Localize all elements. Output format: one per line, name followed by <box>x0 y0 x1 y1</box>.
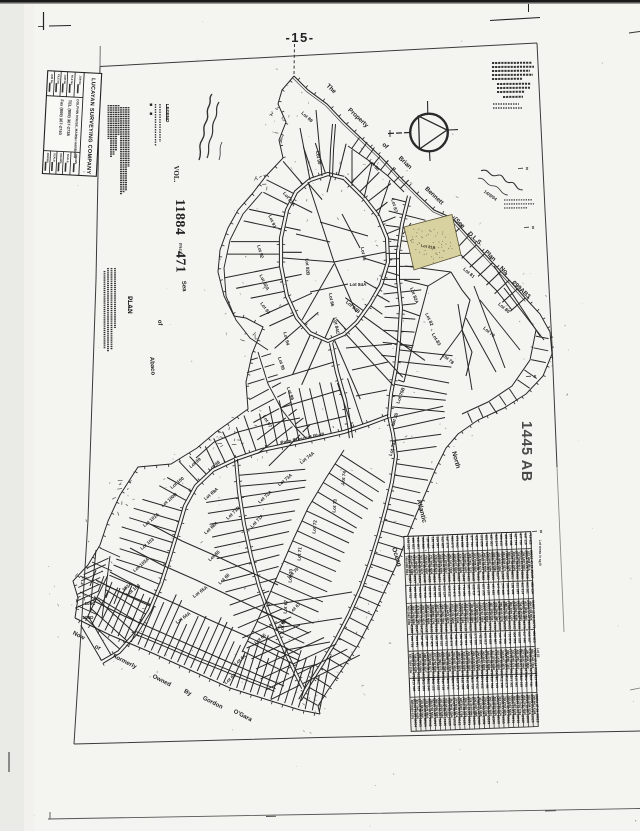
svg-text:758 4419 8665: 758 4419 8665 <box>519 601 524 621</box>
svg-text:558 8675 3396: 558 8675 3396 <box>439 554 444 574</box>
svg-text:905 865: 905 865 <box>421 537 425 549</box>
svg-text:752 5459 9102: 752 5459 9102 <box>517 551 522 571</box>
svg-text:687 3395 0047: 687 3395 0047 <box>489 603 494 623</box>
svg-text:231 2038 7509: 231 2038 7509 <box>442 652 447 672</box>
svg-text:152 064: 152 064 <box>490 677 494 689</box>
svg-text:050 6413 8367: 050 6413 8367 <box>444 698 449 718</box>
svg-text:186 363: 186 363 <box>460 678 464 690</box>
svg-text:822 587: 822 587 <box>493 632 497 644</box>
svg-text:700 516: 700 516 <box>504 676 508 688</box>
svg-text:685 054: 685 054 <box>530 582 534 594</box>
svg-text:986 8000 2578: 986 8000 2578 <box>499 602 504 622</box>
svg-text:244 4721 2646: 244 4721 2646 <box>477 651 482 671</box>
svg-text:965 075: 965 075 <box>450 536 454 548</box>
svg-text:549 904: 549 904 <box>454 634 458 646</box>
svg-text:255 466: 255 466 <box>501 583 505 595</box>
svg-text:749 6499 0913: 749 6499 0913 <box>404 556 409 576</box>
svg-text:680 4420 6788: 680 4420 6788 <box>459 698 464 718</box>
svg-text:343 1611 7240: 343 1611 7240 <box>448 554 453 574</box>
svg-text:389 8364 0376: 389 8364 0376 <box>410 700 415 720</box>
svg-text:931 491: 931 491 <box>416 537 420 549</box>
svg-text:251 925: 251 925 <box>515 583 519 595</box>
svg-text:139 718: 139 718 <box>498 632 502 644</box>
svg-text:DRAWN: DRAWN <box>46 153 51 163</box>
svg-text:435 240: 435 240 <box>504 534 508 546</box>
svg-text:264 4220 9690: 264 4220 9690 <box>493 697 498 717</box>
svg-text:994 1013 7215: 994 1013 7215 <box>464 698 469 718</box>
svg-text:436 349: 436 349 <box>474 535 478 547</box>
svg-text:745 458: 745 458 <box>465 678 469 690</box>
svg-text:313 678: 313 678 <box>465 535 469 547</box>
svg-text:229 9911 9148: 229 9911 9148 <box>532 695 537 715</box>
svg-text:454 0193 8026: 454 0193 8026 <box>528 601 533 621</box>
svg-text:513 7098 5931: 513 7098 5931 <box>473 553 478 573</box>
svg-text:186 449: 186 449 <box>511 583 515 595</box>
svg-text:065 9657 5692: 065 9657 5692 <box>481 651 486 671</box>
svg-text:693 7854 7772: 693 7854 7772 <box>438 653 443 673</box>
svg-text:273 545: 273 545 <box>455 536 459 548</box>
svg-text:121 965: 121 965 <box>534 675 538 687</box>
svg-text:x: x <box>534 374 537 380</box>
svg-text:x: x <box>526 166 529 172</box>
svg-text:477 752: 477 752 <box>518 533 522 545</box>
svg-text:FILE No: FILE No <box>56 74 61 84</box>
svg-text:124 190: 124 190 <box>406 538 410 550</box>
svg-text:827 1091 0430: 827 1091 0430 <box>415 700 420 720</box>
svg-text:431 351: 431 351 <box>489 535 493 547</box>
svg-text:506 1497 3103: 506 1497 3103 <box>512 696 517 716</box>
svg-text:377 889: 377 889 <box>496 583 500 595</box>
svg-text:188 8880 6706: 188 8880 6706 <box>431 605 436 625</box>
svg-text:059 2962 2292: 059 2962 2292 <box>406 606 411 626</box>
svg-text:11884: 11884 <box>172 199 187 235</box>
svg-text:191 8255 3714: 191 8255 3714 <box>511 650 516 670</box>
svg-text:697 1179 8089: 697 1179 8089 <box>426 605 431 625</box>
svg-text:FILE No: FILE No <box>70 75 75 85</box>
svg-text:DRAWN: DRAWN <box>59 153 64 163</box>
svg-text:156 1497 8403: 156 1497 8403 <box>522 551 527 571</box>
svg-text:661 5654 5271: 661 5654 5271 <box>502 552 507 572</box>
svg-text:112 5457 3875: 112 5457 3875 <box>501 650 506 670</box>
svg-text:215 7043 3154: 215 7043 3154 <box>498 696 503 716</box>
svg-text:279 568: 279 568 <box>473 633 477 645</box>
svg-text:713 395: 713 395 <box>412 680 416 692</box>
svg-text:684 577: 684 577 <box>451 678 455 690</box>
svg-text:171 8702 6217: 171 8702 6217 <box>444 554 449 574</box>
svg-text:424 154: 424 154 <box>485 677 489 689</box>
svg-text:LEGEND: LEGEND <box>165 104 170 122</box>
svg-text:617 9796 8868: 617 9796 8868 <box>491 651 496 671</box>
svg-text:SCALE: SCALE <box>52 153 56 162</box>
svg-text:261 9906 2344: 261 9906 2344 <box>449 698 454 718</box>
svg-text:688 2634 3517: 688 2634 3517 <box>423 653 428 673</box>
svg-text:489 0250 3926: 489 0250 3926 <box>457 652 462 672</box>
svg-text:471: 471 <box>173 251 188 273</box>
svg-text:877 1753 5560: 877 1753 5560 <box>433 653 438 673</box>
svg-text:715 4516 8087: 715 4516 8087 <box>424 555 429 575</box>
svg-text:616 3294 5116: 616 3294 5116 <box>527 695 532 715</box>
svg-text:785 0792 5241: 785 0792 5241 <box>430 699 435 719</box>
svg-text:769 453: 769 453 <box>440 536 444 548</box>
svg-text:124 9985 6984: 124 9985 6984 <box>497 552 502 572</box>
svg-text:824 008: 824 008 <box>509 534 513 546</box>
svg-text:027 8742 9671: 027 8742 9671 <box>419 555 424 575</box>
svg-text:004 991: 004 991 <box>415 635 419 647</box>
svg-text:268 414: 268 414 <box>464 634 468 646</box>
svg-text:590 515: 590 515 <box>506 583 510 595</box>
svg-text:855 744: 855 744 <box>484 535 488 547</box>
svg-text:JOB No: JOB No <box>50 74 55 84</box>
svg-text:VOL.: VOL. <box>172 166 180 183</box>
svg-text:474 3671 3695: 474 3671 3695 <box>458 554 463 574</box>
svg-text:185 067: 185 067 <box>426 537 430 549</box>
svg-text:287 431: 287 431 <box>425 635 429 647</box>
svg-text:779 979: 779 979 <box>452 585 456 597</box>
svg-text:427 109: 427 109 <box>514 534 518 546</box>
svg-text:SCALE: SCALE <box>66 154 70 163</box>
svg-text:581 477: 581 477 <box>467 584 471 596</box>
svg-text:496 631: 496 631 <box>411 538 415 550</box>
svg-text:102 0275 8842: 102 0275 8842 <box>425 699 430 719</box>
svg-text:948 126: 948 126 <box>431 679 435 691</box>
svg-text:378 4270 1039: 378 4270 1039 <box>483 697 488 717</box>
svg-text:790 874: 790 874 <box>508 632 512 644</box>
svg-text:656 0494 5198: 656 0494 5198 <box>507 552 512 572</box>
svg-text:675 8692 6179: 675 8692 6179 <box>478 553 483 573</box>
svg-text:141 8328 5691: 141 8328 5691 <box>420 699 425 719</box>
svg-text:359 7746 8862: 359 7746 8862 <box>411 606 416 626</box>
svg-text:530 174: 530 174 <box>459 634 463 646</box>
svg-text:549 329: 549 329 <box>434 635 438 647</box>
svg-text:710 2767 7359: 710 2767 7359 <box>480 603 485 623</box>
svg-text:378 2639 8214: 378 2639 8214 <box>434 555 439 575</box>
svg-text:187 0534 9493: 187 0534 9493 <box>439 699 444 719</box>
svg-text:823 374: 823 374 <box>494 534 498 546</box>
svg-text:JOB No: JOB No <box>78 75 83 85</box>
svg-text:633 7524 3106: 633 7524 3106 <box>408 654 413 674</box>
svg-text:060 715: 060 715 <box>408 587 412 599</box>
svg-text:751 613: 751 613 <box>423 586 427 598</box>
svg-text:818 835: 818 835 <box>437 586 441 598</box>
svg-text:868 7937 4160: 868 7937 4160 <box>522 695 527 715</box>
svg-text:610 1438 8899: 610 1438 8899 <box>496 650 501 670</box>
svg-text:204 7277 9010: 204 7277 9010 <box>421 605 426 625</box>
svg-text:292 1851 5691: 292 1851 5691 <box>488 697 493 717</box>
svg-text:707 286: 707 286 <box>503 632 507 644</box>
svg-text:783 391: 783 391 <box>478 633 482 645</box>
svg-text:114 6786 6912: 114 6786 6912 <box>465 604 470 624</box>
svg-text:661 825: 661 825 <box>532 631 536 643</box>
svg-text:466 711: 466 711 <box>446 678 450 690</box>
svg-text:646 5193 9828: 646 5193 9828 <box>486 651 491 671</box>
svg-text:017 046: 017 046 <box>522 631 526 643</box>
svg-text:865 281: 865 281 <box>525 582 529 594</box>
svg-text:377 701: 377 701 <box>470 535 474 547</box>
svg-text:268 7056 8566: 268 7056 8566 <box>418 653 423 673</box>
svg-text:309 584: 309 584 <box>421 679 425 691</box>
svg-text:828 2586 7362: 828 2586 7362 <box>506 650 511 670</box>
svg-text:206 724: 206 724 <box>410 636 414 648</box>
svg-text:-15-: -15- <box>285 30 314 45</box>
svg-text:Lot 84A: Lot 84A <box>350 282 368 287</box>
svg-text:998 679: 998 679 <box>476 584 480 596</box>
svg-text:226 567: 226 567 <box>527 631 531 643</box>
svg-text:1445 AB: 1445 AB <box>518 421 534 482</box>
svg-text:042 232: 042 232 <box>436 679 440 691</box>
svg-text:160 529: 160 529 <box>418 586 422 598</box>
svg-text:147 379: 147 379 <box>445 536 449 548</box>
svg-text:494 808: 494 808 <box>460 536 464 548</box>
svg-text:105D: 105D <box>83 615 95 620</box>
svg-text:064 039: 064 039 <box>512 632 516 644</box>
svg-text:016 3159 9965: 016 3159 9965 <box>462 652 467 672</box>
svg-text:182 4225 3584: 182 4225 3584 <box>470 603 475 623</box>
svg-text:373 5403 3173: 373 5403 3173 <box>428 653 433 673</box>
svg-text:219 6937 9237: 219 6937 9237 <box>453 554 458 574</box>
svg-text:499 1251 3412: 499 1251 3412 <box>516 650 521 670</box>
svg-text:229 9590 0109: 229 9590 0109 <box>475 603 480 623</box>
svg-text:771 0932 4808: 771 0932 4808 <box>429 555 434 575</box>
svg-text:165 726: 165 726 <box>431 537 435 549</box>
svg-text:453 521: 453 521 <box>433 586 437 598</box>
svg-text:046 374: 046 374 <box>449 634 453 646</box>
svg-text:989 413: 989 413 <box>499 534 503 546</box>
svg-text:115 4479 6275: 115 4479 6275 <box>445 604 450 624</box>
svg-text:696 816: 696 816 <box>428 586 432 598</box>
svg-text:878 519: 878 519 <box>483 633 487 645</box>
svg-text:x: x <box>540 529 543 535</box>
svg-text:086 2118 2339: 086 2118 2339 <box>447 652 452 672</box>
svg-text:Lot areas in sq ft: Lot areas in sq ft <box>538 540 542 566</box>
svg-text:888 7947 0551: 888 7947 0551 <box>504 602 509 622</box>
svg-text:105C: 105C <box>85 601 97 606</box>
svg-text:896 2309 1307: 896 2309 1307 <box>509 602 514 622</box>
svg-text:593 327: 593 327 <box>469 633 473 645</box>
svg-text:578 856: 578 856 <box>479 535 483 547</box>
svg-text:523 124: 523 124 <box>442 585 446 597</box>
svg-text:622 189: 622 189 <box>519 675 523 687</box>
svg-text:929 750: 929 750 <box>470 677 474 689</box>
svg-text:Sea: Sea <box>180 281 187 293</box>
svg-text:770 632: 770 632 <box>480 677 484 689</box>
svg-text:738 3028 4395: 738 3028 4395 <box>413 654 418 674</box>
svg-text:622 6838 8516: 622 6838 8516 <box>527 551 532 571</box>
svg-text:536 729: 536 729 <box>441 678 445 690</box>
svg-text:527 420: 527 420 <box>429 635 433 647</box>
svg-text:827 4225 7905: 827 4225 7905 <box>521 649 526 669</box>
svg-text:016 6687 0021: 016 6687 0021 <box>452 652 457 672</box>
svg-text:643 1713 9005: 643 1713 9005 <box>483 553 488 573</box>
svg-text:310 2786 8144: 310 2786 8144 <box>455 604 460 624</box>
svg-text:115 542: 115 542 <box>514 676 518 688</box>
svg-text:422 8421 0205: 422 8421 0205 <box>487 553 492 573</box>
svg-text:122 753: 122 753 <box>444 634 448 646</box>
svg-text:424 7451 7123: 424 7451 7123 <box>468 553 473 573</box>
svg-text:086 3536 5419: 086 3536 5419 <box>434 699 439 719</box>
svg-text:836 1340 7451: 836 1340 7451 <box>530 649 535 669</box>
svg-text:589 1783 9084: 589 1783 9084 <box>492 552 497 572</box>
svg-text:PLAN: PLAN <box>126 296 133 314</box>
svg-text:717 4648 8771: 717 4648 8771 <box>414 555 419 575</box>
svg-text:106 518: 106 518 <box>517 632 521 644</box>
svg-text:719 022: 719 022 <box>528 533 532 545</box>
svg-text:324 4720 9993: 324 4720 9993 <box>469 697 474 717</box>
svg-text:533 9421 0470: 533 9421 0470 <box>463 554 468 574</box>
svg-text:329 212: 329 212 <box>447 585 451 597</box>
svg-text:JOB No: JOB No <box>63 74 68 84</box>
svg-text:565 2704 7743: 565 2704 7743 <box>517 696 522 716</box>
svg-text:017 012: 017 012 <box>475 677 479 689</box>
svg-text:527 7221 7043: 527 7221 7043 <box>436 605 441 625</box>
svg-text:473 2104 6963: 473 2104 6963 <box>484 603 489 623</box>
svg-text:955 271: 955 271 <box>457 585 461 597</box>
svg-text:098 3584 1687: 098 3584 1687 <box>494 602 499 622</box>
svg-text:978 207: 978 207 <box>486 584 490 596</box>
svg-text:092 753: 092 753 <box>524 675 528 687</box>
svg-text:629 6201 5336: 629 6201 5336 <box>508 696 513 716</box>
svg-text:793 2710 4054: 793 2710 4054 <box>503 696 508 716</box>
svg-text:962 923: 962 923 <box>416 679 420 691</box>
svg-text:982 544: 982 544 <box>426 679 430 691</box>
svg-text:998 0940 2445: 998 0940 2445 <box>512 552 517 572</box>
svg-text:005 411: 005 411 <box>471 584 475 596</box>
svg-text:403 4471 3493: 403 4471 3493 <box>409 556 414 576</box>
svg-text:518 8442 2583: 518 8442 2583 <box>460 604 465 624</box>
svg-text:284 987: 284 987 <box>435 537 439 549</box>
svg-text:806 5787 5985: 806 5787 5985 <box>473 697 478 717</box>
svg-text:970 2135 5690: 970 2135 5690 <box>450 604 455 624</box>
svg-text:462 914: 462 914 <box>520 582 524 594</box>
svg-text:047 116: 047 116 <box>523 533 527 545</box>
svg-text:712 938: 712 938 <box>500 676 504 688</box>
svg-text:668 516: 668 516 <box>439 635 443 647</box>
svg-text:547 887: 547 887 <box>420 635 424 647</box>
svg-text:054 1566 7652: 054 1566 7652 <box>441 604 446 624</box>
svg-text:151 820: 151 820 <box>491 584 495 596</box>
svg-text:431 1426 2655: 431 1426 2655 <box>467 651 472 671</box>
svg-text:578 6527 8585: 578 6527 8585 <box>514 602 519 622</box>
svg-text:886 1015 8199: 886 1015 8199 <box>472 651 477 671</box>
svg-text:190 3404 3842: 190 3404 3842 <box>525 649 530 669</box>
svg-text:774 490: 774 490 <box>462 585 466 597</box>
svg-text:321 3348 0396: 321 3348 0396 <box>478 697 483 717</box>
svg-text:x: x <box>532 225 535 231</box>
svg-text:590 175: 590 175 <box>456 678 460 690</box>
svg-text:478 2613 7506: 478 2613 7506 <box>416 605 421 625</box>
svg-text:277 5618 5374: 277 5618 5374 <box>454 698 459 718</box>
svg-text:271 361: 271 361 <box>509 676 513 688</box>
svg-text:421 9933 0833: 421 9933 0833 <box>524 601 529 621</box>
svg-text:361 103: 361 103 <box>495 676 499 688</box>
svg-text:108 839: 108 839 <box>488 633 492 645</box>
svg-text:269 731: 269 731 <box>529 675 533 687</box>
svg-text:807 935: 807 935 <box>481 584 485 596</box>
svg-text:Lot 63: Lot 63 <box>536 648 540 658</box>
svg-text:969 664: 969 664 <box>413 587 417 599</box>
